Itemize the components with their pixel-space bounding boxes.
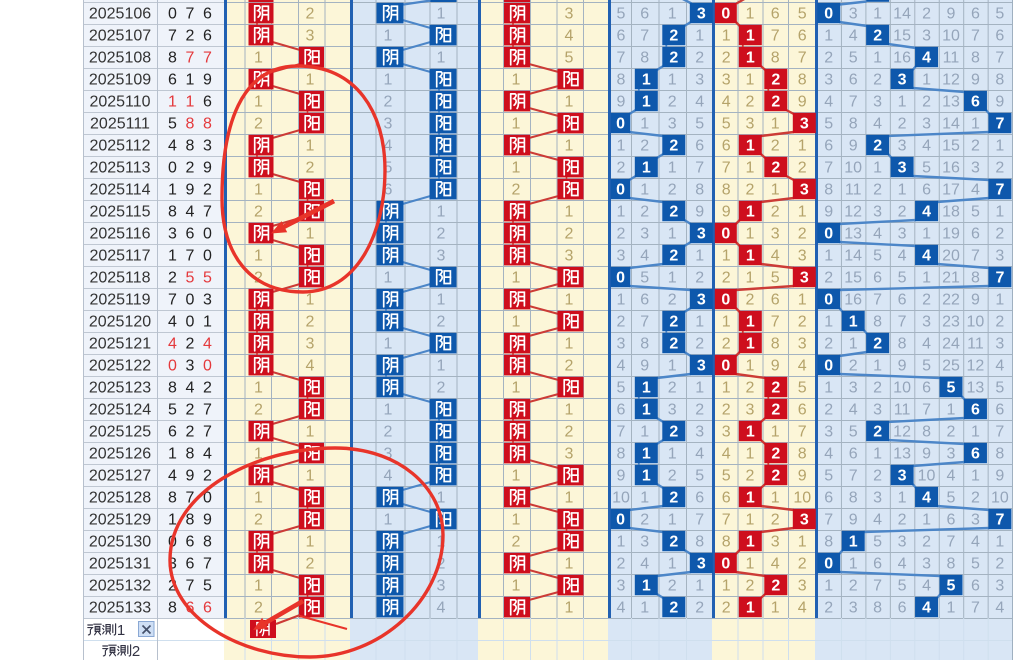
svg-text:7: 7 [849,94,858,111]
svg-text:2: 2 [798,314,807,331]
svg-text:2: 2 [168,270,177,287]
svg-text:11: 11 [967,336,984,353]
svg-text:6: 6 [640,292,649,309]
svg-text:4: 4 [437,600,446,617]
svg-text:7: 7 [640,28,649,45]
svg-text:2: 2 [798,226,807,243]
svg-text:1: 1 [668,446,677,463]
svg-text:1: 1 [971,424,980,441]
svg-text:1: 1 [798,138,807,155]
svg-text:2: 2 [512,182,521,199]
svg-text:9: 9 [186,468,195,485]
svg-text:2: 2 [254,116,263,133]
svg-text:7: 7 [995,270,1004,287]
svg-text:1: 1 [922,512,931,529]
svg-text:7: 7 [824,512,833,529]
svg-text:1: 1 [746,28,755,45]
svg-text:1: 1 [746,50,755,67]
svg-text:2025122: 2025122 [89,358,151,375]
svg-text:2: 2 [771,138,780,155]
svg-text:5: 5 [898,270,907,287]
svg-text:1: 1 [306,424,315,441]
svg-text:1: 1 [947,600,956,617]
svg-text:4: 4 [898,248,907,265]
svg-text:2: 2 [722,50,731,67]
svg-text:4: 4 [971,182,980,199]
svg-text:3: 3 [617,248,626,265]
svg-text:2: 2 [203,182,212,199]
svg-text:3: 3 [697,226,706,243]
svg-text:1: 1 [565,490,574,507]
svg-text:4: 4 [384,468,393,485]
svg-text:2025117: 2025117 [89,248,150,265]
svg-text:6: 6 [771,6,780,23]
svg-text:7: 7 [203,204,212,221]
svg-text:13: 13 [893,446,911,463]
svg-text:2: 2 [922,292,931,309]
svg-text:2: 2 [669,28,678,45]
svg-text:5: 5 [168,116,177,133]
svg-text:3: 3 [203,292,212,309]
svg-text:7: 7 [186,50,195,67]
svg-text:1: 1 [873,358,882,375]
svg-text:0: 0 [203,226,212,243]
svg-text:5: 5 [947,578,956,595]
svg-text:5: 5 [849,424,858,441]
svg-text:1: 1 [746,314,755,331]
svg-text:2: 2 [640,138,649,155]
svg-text:0: 0 [168,358,177,375]
svg-text:1: 1 [117,622,125,639]
svg-text:1: 1 [306,138,315,155]
svg-text:2: 2 [873,138,882,155]
svg-text:8: 8 [695,182,704,199]
svg-text:2025130: 2025130 [89,534,151,551]
svg-text:1: 1 [746,534,755,551]
svg-text:6: 6 [203,600,212,617]
svg-text:5: 5 [995,6,1004,23]
svg-text:3: 3 [873,402,882,419]
svg-text:5: 5 [922,160,931,177]
svg-text:2: 2 [771,512,780,529]
svg-text:5: 5 [695,468,704,485]
svg-text:2: 2 [746,578,755,595]
svg-text:1: 1 [695,248,704,265]
svg-text:4: 4 [824,446,833,463]
svg-text:3: 3 [995,336,1004,353]
svg-text:2025113: 2025113 [89,160,150,177]
svg-text:2: 2 [722,402,731,419]
svg-text:6: 6 [947,512,956,529]
svg-text:2: 2 [995,226,1004,243]
svg-text:1: 1 [640,600,649,617]
svg-text:2025109: 2025109 [89,72,151,89]
svg-text:4: 4 [873,226,882,243]
svg-text:10: 10 [844,160,862,177]
svg-text:0: 0 [721,226,730,243]
svg-text:2: 2 [617,314,626,331]
svg-text:8: 8 [798,446,807,463]
svg-text:1: 1 [971,116,980,133]
svg-text:3: 3 [437,578,446,595]
svg-text:1: 1 [512,512,521,529]
svg-text:2: 2 [254,512,263,529]
svg-text:3: 3 [800,182,809,199]
svg-text:0: 0 [616,512,625,529]
svg-text:2: 2 [746,292,755,309]
svg-text:1: 1 [565,336,574,353]
svg-text:16: 16 [942,160,960,177]
svg-text:1: 1 [640,116,649,133]
svg-text:7: 7 [722,160,731,177]
svg-text:8: 8 [971,270,980,287]
svg-text:7: 7 [898,314,907,331]
svg-text:1: 1 [746,490,755,507]
svg-text:1: 1 [746,138,755,155]
svg-text:1: 1 [565,204,574,221]
svg-text:3: 3 [898,534,907,551]
svg-text:2: 2 [746,182,755,199]
svg-text:1: 1 [722,578,731,595]
svg-text:1: 1 [746,160,755,177]
svg-text:1: 1 [254,380,263,397]
svg-text:8: 8 [617,446,626,463]
svg-text:5: 5 [824,468,833,485]
svg-text:3: 3 [640,534,649,551]
svg-text:4: 4 [617,600,626,617]
svg-text:0: 0 [824,226,833,243]
svg-text:7: 7 [995,424,1004,441]
svg-text:6: 6 [824,490,833,507]
svg-text:4: 4 [922,490,931,507]
svg-text:8: 8 [617,72,626,89]
svg-text:2: 2 [640,512,649,529]
svg-text:4: 4 [695,446,704,463]
svg-text:1: 1 [668,358,677,375]
svg-text:2: 2 [203,380,212,397]
svg-text:1: 1 [306,72,315,89]
svg-text:4: 4 [798,600,807,617]
svg-text:1: 1 [971,468,980,485]
svg-text:2: 2 [668,182,677,199]
svg-text:1: 1 [186,72,195,89]
svg-text:1: 1 [437,6,446,23]
svg-text:1: 1 [849,336,858,353]
svg-text:2: 2 [203,468,212,485]
svg-text:6: 6 [203,28,212,45]
svg-text:2: 2 [922,6,931,23]
svg-text:3: 3 [746,116,755,133]
svg-text:5: 5 [798,6,807,23]
svg-text:2: 2 [922,94,931,111]
svg-text:3: 3 [849,6,858,23]
svg-text:6: 6 [203,94,212,111]
svg-text:1: 1 [746,72,755,89]
svg-text:1: 1 [824,380,833,397]
svg-text:2: 2 [437,314,446,331]
svg-text:3: 3 [168,226,177,243]
svg-text:3: 3 [798,336,807,353]
svg-text:8: 8 [798,72,807,89]
svg-text:1: 1 [254,578,263,595]
svg-text:9: 9 [722,204,731,221]
svg-text:3: 3 [186,358,195,375]
svg-text:3: 3 [722,424,731,441]
svg-text:1: 1 [512,468,521,485]
svg-text:1: 1 [824,578,833,595]
svg-text:8: 8 [947,556,956,573]
svg-text:2: 2 [668,380,677,397]
svg-text:2: 2 [771,446,780,463]
svg-text:4: 4 [203,446,212,463]
svg-text:8: 8 [849,116,858,133]
svg-text:7: 7 [798,424,807,441]
svg-text:1: 1 [306,226,315,243]
svg-text:8: 8 [771,50,780,67]
svg-text:5: 5 [947,490,956,507]
svg-text:1: 1 [617,138,626,155]
svg-text:7: 7 [798,50,807,67]
svg-text:4: 4 [922,600,931,617]
svg-text:8: 8 [168,490,177,507]
svg-text:7: 7 [922,402,931,419]
svg-text:3: 3 [306,28,315,45]
svg-text:6: 6 [873,556,882,573]
svg-text:0: 0 [824,358,833,375]
svg-text:1: 1 [565,138,574,155]
svg-text:3: 3 [695,424,704,441]
svg-text:2025127: 2025127 [89,468,151,485]
svg-text:6: 6 [971,402,980,419]
svg-text:2025131: 2025131 [89,556,151,573]
svg-text:1: 1 [617,534,626,551]
svg-text:2: 2 [798,160,807,177]
svg-text:3: 3 [798,578,807,595]
svg-text:1: 1 [722,248,731,265]
svg-text:3: 3 [922,314,931,331]
svg-text:3: 3 [746,402,755,419]
svg-text:2: 2 [898,204,907,221]
svg-text:3: 3 [898,160,907,177]
svg-text:17: 17 [942,182,960,199]
svg-text:7: 7 [617,50,626,67]
svg-text:2: 2 [669,534,678,551]
svg-text:7: 7 [695,160,704,177]
svg-text:3: 3 [873,204,882,221]
svg-text:0: 0 [186,292,195,309]
svg-text:10: 10 [942,28,960,45]
svg-text:1: 1 [512,270,521,287]
svg-text:1: 1 [668,226,677,243]
svg-text:7: 7 [995,50,1004,67]
svg-text:1: 1 [995,292,1004,309]
svg-text:5: 5 [995,380,1004,397]
svg-text:4: 4 [824,94,833,111]
svg-text:1: 1 [642,578,651,595]
svg-text:2: 2 [849,358,858,375]
svg-text:6: 6 [186,556,195,573]
svg-text:1: 1 [254,182,263,199]
svg-text:1: 1 [849,556,858,573]
svg-text:8: 8 [971,50,980,67]
svg-text:0: 0 [168,160,177,177]
svg-text:2: 2 [824,50,833,67]
svg-text:2025129: 2025129 [89,512,151,529]
svg-text:2: 2 [849,578,858,595]
svg-text:2: 2 [873,28,882,45]
svg-text:3: 3 [437,248,446,265]
svg-text:1: 1 [254,248,263,265]
svg-text:5: 5 [798,380,807,397]
svg-text:0: 0 [616,270,625,287]
svg-text:1: 1 [771,424,780,441]
svg-text:6: 6 [824,138,833,155]
svg-text:2: 2 [947,424,956,441]
svg-text:3: 3 [971,160,980,177]
svg-text:1: 1 [306,534,315,551]
svg-text:9: 9 [771,358,780,375]
svg-text:8: 8 [722,534,731,551]
svg-text:9: 9 [898,358,907,375]
svg-text:3: 3 [697,556,706,573]
svg-text:1: 1 [565,94,574,111]
svg-text:2025115: 2025115 [89,204,150,221]
svg-text:1: 1 [722,314,731,331]
svg-text:1: 1 [746,336,755,353]
svg-text:5: 5 [186,270,195,287]
svg-text:11: 11 [894,402,911,419]
svg-text:12: 12 [893,424,911,441]
svg-text:1: 1 [873,50,882,67]
svg-text:4: 4 [722,446,731,463]
svg-text:6: 6 [695,138,704,155]
svg-text:2025121: 2025121 [89,336,151,353]
svg-text:1: 1 [947,402,956,419]
svg-text:3: 3 [640,226,649,243]
svg-text:2025120: 2025120 [89,314,151,331]
svg-text:1: 1 [384,270,393,287]
svg-text:16: 16 [893,50,911,67]
svg-text:10: 10 [991,490,1009,507]
svg-text:3: 3 [203,138,212,155]
svg-text:2: 2 [617,226,626,243]
svg-text:6: 6 [798,28,807,45]
svg-text:1: 1 [771,116,780,133]
svg-text:25: 25 [942,358,960,375]
svg-text:9: 9 [617,468,626,485]
svg-text:4: 4 [849,28,858,45]
svg-text:3: 3 [873,490,882,507]
svg-text:1: 1 [873,446,882,463]
svg-text:1: 1 [384,28,393,45]
svg-text:6: 6 [203,6,212,23]
svg-text:6: 6 [971,446,980,463]
svg-text:1: 1 [746,600,755,617]
svg-text:5: 5 [873,248,882,265]
svg-text:0: 0 [824,556,833,573]
svg-text:1: 1 [824,314,833,331]
svg-text:3: 3 [565,248,574,265]
svg-text:1: 1 [642,380,651,397]
svg-text:4: 4 [168,314,177,331]
svg-text:1: 1 [746,204,755,221]
svg-text:2025119: 2025119 [89,292,150,309]
svg-text:1: 1 [695,314,704,331]
svg-text:5: 5 [203,578,212,595]
svg-text:2: 2 [695,270,704,287]
svg-text:1: 1 [384,336,393,353]
svg-text:2: 2 [669,138,678,155]
svg-text:4: 4 [203,336,212,353]
svg-text:2025106: 2025106 [89,6,151,23]
svg-text:1: 1 [565,556,574,573]
svg-text:3: 3 [800,270,809,287]
svg-text:7: 7 [947,534,956,551]
svg-text:4: 4 [922,248,931,265]
svg-text:5: 5 [898,578,907,595]
svg-text:2: 2 [668,94,677,111]
svg-text:2: 2 [640,204,649,221]
svg-text:6: 6 [186,226,195,243]
svg-text:1: 1 [640,424,649,441]
svg-text:13: 13 [844,226,862,243]
svg-text:2025126: 2025126 [89,446,151,463]
svg-text:1: 1 [798,292,807,309]
svg-text:3: 3 [617,578,626,595]
svg-text:2: 2 [722,270,731,287]
svg-text:9: 9 [186,182,195,199]
svg-text:1: 1 [512,160,521,177]
svg-text:3: 3 [565,6,574,23]
svg-text:5: 5 [971,556,980,573]
svg-text:1: 1 [668,6,677,23]
svg-text:4: 4 [947,468,956,485]
svg-text:0: 0 [203,358,212,375]
svg-text:4: 4 [922,50,931,67]
svg-text:6: 6 [771,292,780,309]
svg-text:8: 8 [849,490,858,507]
svg-text:3: 3 [800,116,809,133]
svg-text:18: 18 [942,204,960,221]
svg-text:4: 4 [922,336,931,353]
svg-text:1: 1 [722,28,731,45]
svg-text:5: 5 [695,116,704,133]
svg-text:3: 3 [824,72,833,89]
svg-text:3: 3 [697,358,706,375]
svg-text:2: 2 [824,600,833,617]
svg-text:3: 3 [798,248,807,265]
svg-text:2: 2 [922,534,931,551]
svg-text:2: 2 [722,600,731,617]
svg-text:5: 5 [617,6,626,23]
svg-text:1: 1 [746,446,755,463]
svg-text:7: 7 [995,182,1004,199]
svg-text:7: 7 [186,248,195,265]
svg-text:7: 7 [640,314,649,331]
svg-text:8: 8 [168,50,177,67]
svg-text:2: 2 [437,380,446,397]
svg-text:5: 5 [824,116,833,133]
svg-text:2: 2 [437,226,446,243]
svg-text:3: 3 [922,116,931,133]
svg-text:1: 1 [642,468,651,485]
svg-text:14: 14 [942,116,960,133]
svg-text:8: 8 [168,380,177,397]
svg-text:2: 2 [873,380,882,397]
svg-text:2: 2 [306,556,315,573]
svg-text:1: 1 [186,94,195,111]
svg-text:1: 1 [437,50,446,67]
